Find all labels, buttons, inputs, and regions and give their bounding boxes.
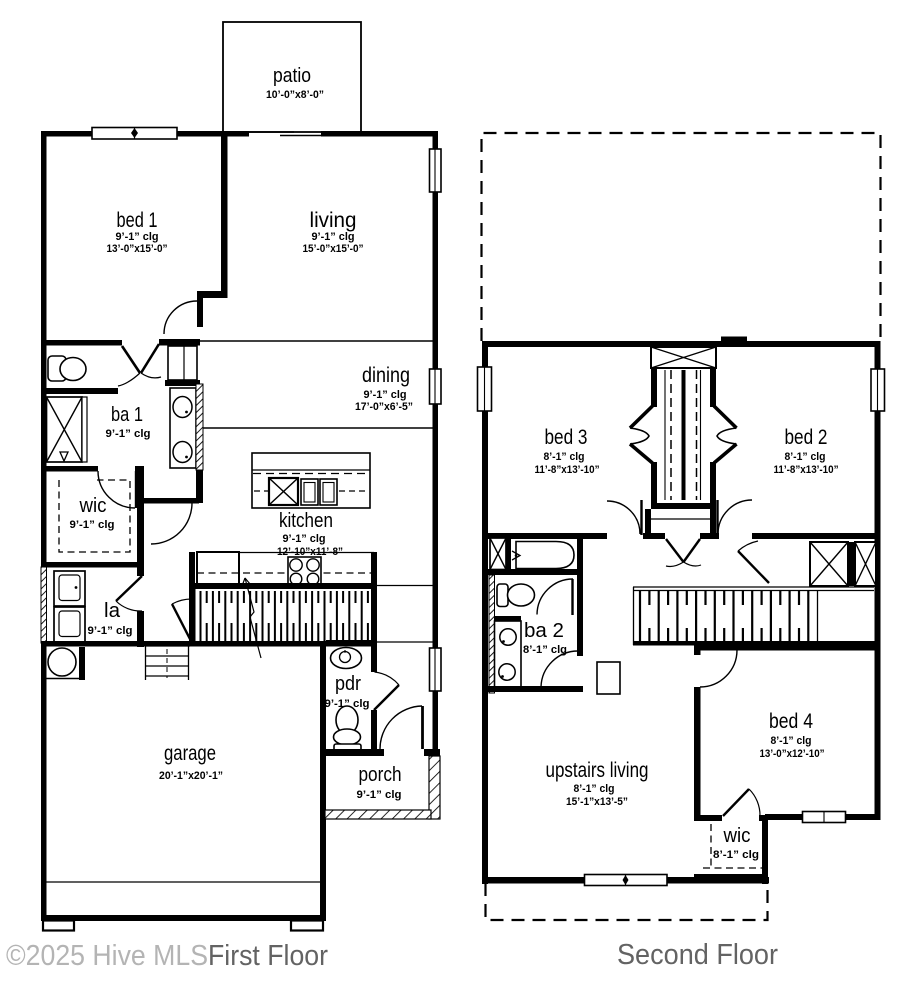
- svg-text:8’-1” clg: 8’-1” clg: [544, 451, 585, 463]
- svg-text:9’-1” clg: 9’-1” clg: [364, 389, 407, 401]
- svg-text:11’-8”x13’-10”: 11’-8”x13’-10”: [774, 464, 839, 476]
- svg-text:9’-1” clg: 9’-1” clg: [357, 789, 402, 801]
- svg-text:9’-1” clg: 9’-1” clg: [88, 625, 133, 637]
- svg-text:patio: patio: [273, 65, 311, 87]
- svg-text:First Floor: First Floor: [208, 940, 328, 972]
- svg-text:dining: dining: [362, 364, 410, 387]
- svg-text:13’-0”x15’-0”: 13’-0”x15’-0”: [107, 243, 168, 255]
- svg-text:15’-1”x13’-5”: 15’-1”x13’-5”: [566, 796, 628, 808]
- svg-text:8’-1” clg: 8’-1” clg: [785, 451, 826, 463]
- svg-text:8’-1” clg: 8’-1” clg: [713, 849, 759, 861]
- svg-text:Second Floor: Second Floor: [617, 939, 778, 971]
- svg-text:living: living: [310, 209, 357, 232]
- svg-text:©2025 Hive MLS: ©2025 Hive MLS: [6, 940, 208, 972]
- svg-text:kitchen: kitchen: [279, 510, 333, 532]
- svg-text:9’-1” clg: 9’-1” clg: [312, 231, 355, 243]
- svg-text:9’-1” clg: 9’-1” clg: [106, 428, 151, 440]
- svg-text:15’-0”x15’-0”: 15’-0”x15’-0”: [303, 243, 364, 255]
- svg-text:wic: wic: [723, 825, 751, 847]
- svg-text:bed 1: bed 1: [117, 209, 158, 232]
- svg-text:porch: porch: [359, 764, 402, 786]
- svg-text:9’-1” clg: 9’-1” clg: [116, 231, 159, 243]
- svg-text:17’-0”x6’-5”: 17’-0”x6’-5”: [355, 401, 413, 413]
- svg-text:garage: garage: [164, 742, 216, 765]
- svg-text:ba 1: ba 1: [111, 404, 143, 426]
- svg-text:wic: wic: [79, 495, 107, 517]
- svg-text:8’-1” clg: 8’-1” clg: [523, 644, 567, 656]
- svg-text:8’-1” clg: 8’-1” clg: [771, 735, 812, 747]
- svg-text:upstairs living: upstairs living: [546, 759, 649, 782]
- svg-text:bed 3: bed 3: [545, 426, 588, 449]
- svg-text:bed 2: bed 2: [785, 426, 828, 449]
- svg-text:ba 2: ba 2: [524, 620, 564, 642]
- svg-text:10’-0”x8’-0”: 10’-0”x8’-0”: [266, 89, 324, 101]
- svg-text:8’-1” clg: 8’-1” clg: [574, 783, 615, 795]
- svg-text:pdr: pdr: [335, 673, 361, 695]
- svg-text:9’-1” clg: 9’-1” clg: [70, 519, 115, 531]
- svg-text:13’-0”x12’-10”: 13’-0”x12’-10”: [760, 748, 825, 760]
- svg-text:bed 4: bed 4: [769, 710, 813, 733]
- svg-text:20’-1”x20’-1”: 20’-1”x20’-1”: [159, 770, 223, 782]
- svg-text:11’-8”x13’-10”: 11’-8”x13’-10”: [535, 464, 600, 476]
- svg-text:9’-1” clg: 9’-1” clg: [283, 533, 326, 545]
